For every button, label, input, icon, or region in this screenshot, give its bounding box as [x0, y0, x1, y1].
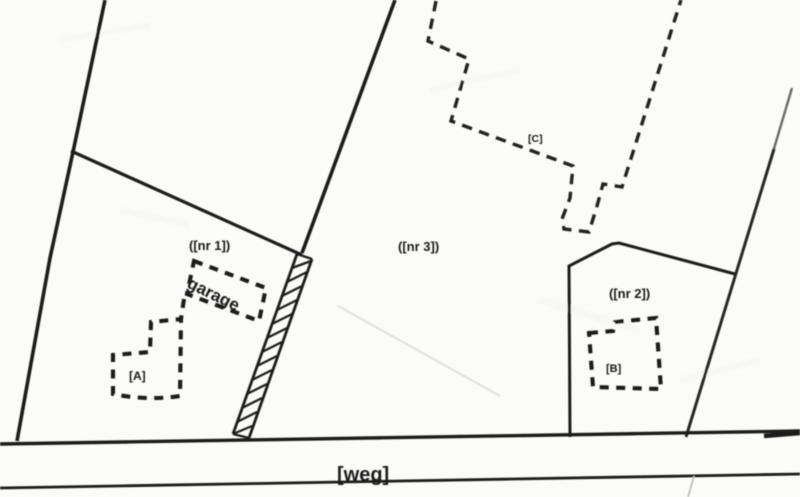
svg-text:[C]: [C]	[528, 133, 543, 145]
svg-text:([nr 1]): ([nr 1])	[189, 238, 230, 253]
svg-text:[weg]: [weg]	[337, 464, 389, 486]
svg-text:([nr 3]): ([nr 3])	[398, 239, 439, 254]
svg-text:[A]: [A]	[129, 369, 146, 383]
svg-text:[B]: [B]	[606, 363, 622, 375]
svg-text:([nr 2]): ([nr 2])	[609, 286, 650, 301]
